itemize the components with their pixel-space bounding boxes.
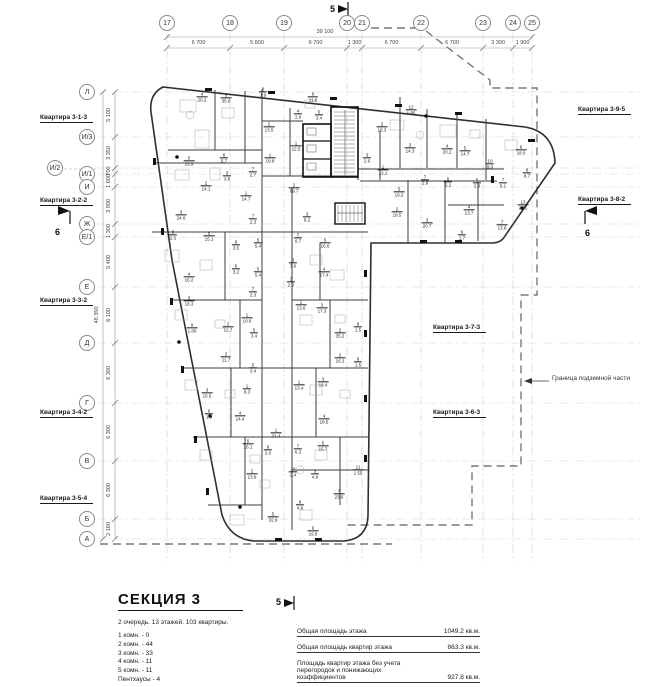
room-area: 13.9 xyxy=(247,475,258,480)
room-area: 18.4 xyxy=(318,383,329,388)
room-area: 20.2 xyxy=(442,150,453,155)
dim-left-segment: 5 400 xyxy=(106,255,112,269)
grid-bubble-col-23: 23 xyxy=(475,15,491,31)
room-area-label: 713.8 xyxy=(497,219,508,230)
room-area-label: 413.7 xyxy=(464,204,475,215)
room-area-label: 132.15 xyxy=(518,199,529,210)
room-area-label: 114.7 xyxy=(241,190,252,201)
room-area: 3.6 xyxy=(289,264,297,269)
area-total-row: Общая площадь квартир этажа863.3 кв.м. xyxy=(297,644,480,653)
room-area: 3.5 xyxy=(232,246,240,251)
room-area: 1.95 xyxy=(406,111,417,116)
room-area-label: 121.95 xyxy=(406,104,417,115)
section-cut-number-6: 6 xyxy=(55,227,60,237)
legend-block: СЕКЦИЯ 3 2 очередь. 13 этажей. 103 кварт… xyxy=(118,591,638,685)
room-area: 5.7 xyxy=(220,159,228,164)
room-area: 6.3 xyxy=(294,450,302,455)
dim-top-segment: 1 900 xyxy=(516,40,530,46)
dim-left-total: 48 350 xyxy=(94,307,100,324)
room-area: 1.80 xyxy=(187,329,198,334)
dim-left-segment: 1 300 xyxy=(106,224,112,238)
dim-left-segment: 6 300 xyxy=(106,425,112,439)
room-area: 18.0 xyxy=(516,151,527,156)
room-area: 8.2 xyxy=(303,218,311,223)
area-total-row: Площадь квартир этажа без учета перегоро… xyxy=(297,660,480,683)
room-area: 2.7 xyxy=(249,173,257,178)
room-area-label: 619.9 xyxy=(308,525,319,536)
room-area-label: 121.4 xyxy=(271,427,282,438)
floor-plan-sheet: 171819202122232425ЛИ/3И/1ИЖЕ/1ЕДГВБАИ/23… xyxy=(0,0,650,687)
grid-bubble-row-И/2: И/2 xyxy=(47,160,63,176)
room-area-label: 318.3 xyxy=(184,295,195,306)
dim-left-segment: 2 160 xyxy=(106,522,112,536)
room-area: 2.8 xyxy=(421,181,429,186)
room-area-label: 32.0 xyxy=(287,276,295,287)
grid-bubble-row-Е: Е xyxy=(79,279,95,295)
area-total-label: Площадь квартир этажа без учета перегоро… xyxy=(297,660,427,681)
room-area-label: 91.5 xyxy=(354,356,362,367)
dim-left-segment: 5 100 xyxy=(106,108,112,122)
room-area-label: 213.5 xyxy=(264,121,275,132)
room-area: 2.15 xyxy=(518,206,529,211)
room-area: 1.55 xyxy=(353,471,364,476)
room-area-label: 416.2 xyxy=(184,271,195,282)
room-area-label: 109.0 xyxy=(486,158,494,169)
room-area: 4.6 xyxy=(296,506,304,511)
dim-top-segment: 6 700 xyxy=(309,40,323,46)
room-area-label: 618.0 xyxy=(516,144,527,155)
room-area-label: 32.6 xyxy=(363,152,371,163)
room-area: 1.5 xyxy=(354,363,362,368)
room-area-label: 113.6 xyxy=(296,299,307,310)
room-area: 16.2 xyxy=(184,278,195,283)
room-area: 8.7 xyxy=(523,174,531,179)
apartment-link-3-5-4[interactable]: Квартира 3-5-4 xyxy=(40,495,93,504)
room-area-label: 34.9 xyxy=(311,468,319,479)
room-area-label: 33.6 xyxy=(289,257,297,268)
room-area: 15.7 xyxy=(318,447,329,452)
room-area-label: 525.9 xyxy=(184,155,195,166)
apartment-link-3-1-3[interactable]: Квартира 3-1-3 xyxy=(40,114,93,123)
room-area: 69.7 xyxy=(289,189,300,194)
room-area-label: 216.2 xyxy=(335,352,346,363)
area-total-label: Общая площадь квартир этажа xyxy=(297,644,392,651)
dim-left-segment: 6 300 xyxy=(106,366,112,380)
room-area: 8.3 xyxy=(243,390,251,395)
room-area: 2.4 xyxy=(289,473,297,478)
grid-bubble-row-Б: Б xyxy=(79,511,95,527)
apartment-link-3-6-3[interactable]: Квартира 3-6-3 xyxy=(433,409,486,418)
room-area-label: 61.7 xyxy=(458,229,466,240)
room-area-label: 211.7 xyxy=(221,351,231,362)
room-area: 2.8 xyxy=(473,184,481,189)
room-area-label: 53.4 xyxy=(315,109,323,120)
room-area-label: 212.7 xyxy=(223,321,234,332)
plan-labels-layer: 171819202122232425ЛИ/3И/1ИЖЕ/1ЕДГВБАИ/23… xyxy=(0,0,650,687)
room-area-label: 314.3 xyxy=(405,142,416,153)
grid-bubble-row-Л: Л xyxy=(79,84,95,100)
room-area-label: 55.4 xyxy=(254,237,262,248)
room-area: 2.9 xyxy=(294,115,302,120)
room-area: 12.1 xyxy=(378,171,389,176)
room-area-label: 414.4 xyxy=(235,410,246,421)
room-area-label: 213.9 xyxy=(247,468,258,479)
room-area: 15.1 xyxy=(204,237,215,242)
grid-bubble-col-20: 20 xyxy=(339,15,355,31)
room-area: 3.4 xyxy=(249,369,257,374)
room-area: 5.2 xyxy=(444,183,452,188)
room-area-label: 113.4 xyxy=(294,379,305,390)
dim-top-segment: 3 300 xyxy=(491,40,505,46)
room-area-label: 110.8 xyxy=(242,312,253,323)
room-area: 18.5 xyxy=(319,420,330,425)
room-area-label: 61.9 xyxy=(205,408,213,419)
room-area-label: 235.2 xyxy=(335,327,346,338)
area-total-label: Общая площадь этажа xyxy=(297,628,367,635)
room-area-label: 91.5 xyxy=(354,321,362,332)
room-area-label: 214.1 xyxy=(201,180,212,191)
room-area-label: 418.5 xyxy=(319,413,330,424)
apartment-link-3-2-2[interactable]: Квартира 3-2-2 xyxy=(40,197,93,206)
room-area-label: 218.3 xyxy=(377,121,388,132)
section-cut-number-5: 5 xyxy=(330,4,335,14)
room-area: 2.3 xyxy=(249,220,257,225)
room-area: 2.0 xyxy=(264,451,272,456)
dim-top-segment: 6 700 xyxy=(385,40,399,46)
room-area: 35.6 xyxy=(221,99,232,104)
room-area: 5.4 xyxy=(254,244,262,249)
room-area-label: 514.7 xyxy=(460,145,471,156)
room-area: 12.7 xyxy=(223,328,234,333)
room-area-label: 81.9 xyxy=(259,86,267,97)
room-area: 4.9 xyxy=(311,475,319,480)
grid-bubble-row-Е/1: Е/1 xyxy=(79,229,95,245)
room-area: 18.3 xyxy=(377,128,388,133)
room-area: 14.3 xyxy=(405,149,416,154)
room-area: 24.6 xyxy=(176,216,187,221)
room-area-label: 515.7 xyxy=(318,440,329,451)
apartment-link-3-4-2[interactable]: Квартира 3-4-2 xyxy=(40,409,93,418)
grid-bubble-col-21: 21 xyxy=(354,15,370,31)
section-cut-number-6: 6 xyxy=(585,228,590,238)
room-area: 12.5 xyxy=(291,147,302,152)
room-area: 13.8 xyxy=(497,226,508,231)
room-area-label: 318.4 xyxy=(318,376,329,387)
room-area-label: 111.55 xyxy=(353,464,364,475)
room-area-label: 119.8 xyxy=(265,152,276,163)
room-area-label: 269.7 xyxy=(289,182,300,193)
room-area: 5.4 xyxy=(254,273,262,278)
room-area: 19.8 xyxy=(265,159,276,164)
dim-top-segment: 6 700 xyxy=(192,40,206,46)
section-subtitle: 2 очередь. 13 этажей. 103 квартиры. xyxy=(118,619,638,626)
room-area: 2.5 xyxy=(169,236,177,241)
room-area-label: 320.7 xyxy=(422,217,433,228)
room-area-label: 53.4 xyxy=(250,327,258,338)
room-area-label: 611.6 xyxy=(308,91,318,102)
room-area: 2.6 xyxy=(363,159,371,164)
room-area-label: 42.9 xyxy=(294,108,302,119)
dim-left-segment: 6 300 xyxy=(106,483,112,497)
dim-left-segment: 3 350 xyxy=(106,146,112,160)
grid-bubble-col-22: 22 xyxy=(413,15,429,31)
room-area: 21.4 xyxy=(271,434,282,439)
room-area: 13.4 xyxy=(294,386,305,391)
room-area-label: 52.8 xyxy=(473,177,481,188)
room-area: 11.7 xyxy=(221,358,231,363)
room-area-label: 516.6 xyxy=(320,237,331,248)
room-area-label: 53.4 xyxy=(249,362,257,373)
room-area: 1.9 xyxy=(259,93,267,98)
room-area-label: 88.7 xyxy=(523,167,531,178)
room-area: 32.9 xyxy=(268,518,279,523)
room-area-label: 532.9 xyxy=(268,511,279,522)
room-area: 1.9 xyxy=(205,415,213,420)
room-area: 25.9 xyxy=(184,162,195,167)
grid-bubble-row-Д: Д xyxy=(79,335,95,351)
room-area: 1.5 xyxy=(354,328,362,333)
room-area: 3.4 xyxy=(250,334,258,339)
room-area: 19.2 xyxy=(394,193,405,198)
room-area-label: 102.4 xyxy=(289,466,297,477)
room-area: 20.7 xyxy=(422,224,433,229)
room-area-label: 38.2 xyxy=(303,211,311,222)
room-area: 18.3 xyxy=(184,302,195,307)
grid-bubble-row-И: И xyxy=(79,179,95,195)
room-area: 13.5 xyxy=(264,128,275,133)
apartment-link-3-9-5[interactable]: Квартира 3-9-5 xyxy=(578,106,631,115)
room-area-label: 417.4 xyxy=(319,266,330,277)
apartment-link-3-3-2[interactable]: Квартира 3-3-2 xyxy=(40,297,93,306)
room-area: 10.8 xyxy=(242,319,253,324)
apartment-link-3-8-2[interactable]: Квартира 3-8-2 xyxy=(578,196,631,205)
room-area: 6.7 xyxy=(294,239,302,244)
room-area: 14.7 xyxy=(460,152,471,157)
grid-bubble-col-25: 25 xyxy=(524,15,540,31)
room-area: 16.2 xyxy=(335,359,346,364)
room-area: 17.3 xyxy=(317,309,328,314)
room-area-label: 515.1 xyxy=(204,230,215,241)
room-area-label: 317.3 xyxy=(317,302,328,313)
dim-left-segment: 3 900 xyxy=(106,199,112,213)
room-area: 23.6 xyxy=(334,495,345,500)
room-area: 35.2 xyxy=(335,334,346,339)
room-area-label: 72.8 xyxy=(421,174,429,185)
room-area-label: 76.3 xyxy=(294,443,302,454)
room-area: 2.0 xyxy=(287,283,295,288)
room-area-label: 420.2 xyxy=(197,91,208,102)
room-area: 9.0 xyxy=(486,165,494,170)
room-area: 20.2 xyxy=(197,98,208,103)
room-area: 19.5 xyxy=(392,213,403,218)
room-area-label: 76.7 xyxy=(294,232,302,243)
room-area: 2.3 xyxy=(249,293,257,298)
grid-bubble-row-А: А xyxy=(79,531,95,547)
room-area: 19.9 xyxy=(308,532,319,537)
room-area-label: 335.6 xyxy=(221,92,232,103)
room-area-label: 723.6 xyxy=(334,488,345,499)
room-area-label: 63.2 xyxy=(232,263,240,274)
area-total-value: 927.8 кв.м. xyxy=(448,674,480,681)
grid-bubble-col-18: 18 xyxy=(222,15,238,31)
grid-bubble-row-И/3: И/3 xyxy=(79,129,95,145)
room-area-label: 92.0 xyxy=(264,444,272,455)
room-area-label: 420.2 xyxy=(442,143,453,154)
room-area: 11.6 xyxy=(308,98,318,103)
dim-top-segment: 5 800 xyxy=(250,40,264,46)
room-area: 3.2 xyxy=(232,270,240,275)
room-area: 16.6 xyxy=(320,244,331,249)
room-area-label: 84.6 xyxy=(296,499,304,510)
room-area-label: 83.5 xyxy=(232,239,240,250)
room-area: 1.7 xyxy=(458,236,466,241)
room-area-label: 65.7 xyxy=(220,152,228,163)
area-totals-table: Общая площадь этажа1049.2 кв.м.Общая пло… xyxy=(297,628,480,687)
room-area-label: 75.1 xyxy=(499,177,507,188)
dim-top-total: 39 100 xyxy=(317,29,334,35)
room-area-label: 72.3 xyxy=(249,213,257,224)
dim-left-segment: 1 600 xyxy=(106,174,112,188)
dim-top-segment: 6 700 xyxy=(445,40,459,46)
room-area-label: 33.8 xyxy=(223,170,231,181)
room-area: 17.4 xyxy=(319,273,330,278)
room-area: 13.6 xyxy=(296,306,307,311)
room-area: 3.4 xyxy=(315,116,323,121)
room-area-label: 65.2 xyxy=(444,176,452,187)
room-area-label: 91.80 xyxy=(187,322,198,333)
grid-bubble-col-19: 19 xyxy=(276,15,292,31)
room-area-label: 219.5 xyxy=(392,206,403,217)
grid-bubble-row-В: В xyxy=(79,453,95,469)
area-total-row: Общая площадь этажа1049.2 кв.м. xyxy=(297,628,480,637)
room-area-label: 112.1 xyxy=(378,164,389,175)
section-title: СЕКЦИЯ 3 xyxy=(118,591,243,611)
room-area: 14.7 xyxy=(241,197,252,202)
dim-left-segment: 6 100 xyxy=(106,308,112,322)
room-area-label: 72.3 xyxy=(249,286,257,297)
grid-bubble-col-24: 24 xyxy=(505,15,521,31)
room-area-label: 516.1 xyxy=(243,438,254,449)
grid-bubble-col-17: 17 xyxy=(159,15,175,31)
room-area: 5.1 xyxy=(499,184,507,189)
apartment-link-3-7-3[interactable]: Квартира 3-7-3 xyxy=(433,324,486,333)
area-total-value: 863.3 кв.м. xyxy=(448,644,480,651)
room-area: 14.1 xyxy=(201,187,212,192)
room-area: 3.8 xyxy=(223,177,231,182)
dim-top-segment: 1 300 xyxy=(348,40,362,46)
room-area: 16.1 xyxy=(243,445,254,450)
room-area-label: 92.5 xyxy=(169,229,177,240)
room-area: 13.7 xyxy=(464,211,475,216)
room-area-label: 18.3 xyxy=(243,383,251,394)
room-area: 14.4 xyxy=(235,417,246,422)
area-total-value: 1049.2 кв.м. xyxy=(444,628,480,635)
room-area-label: 72.7 xyxy=(249,166,257,177)
room-area-label: 519.2 xyxy=(394,186,405,197)
room-area-label: 55.4 xyxy=(254,266,262,277)
room-area: 15.5 xyxy=(202,394,213,399)
room-area-label: 112.5 xyxy=(291,140,302,151)
room-area-label: 315.5 xyxy=(202,387,213,398)
room-area-label: 324.6 xyxy=(176,209,187,220)
